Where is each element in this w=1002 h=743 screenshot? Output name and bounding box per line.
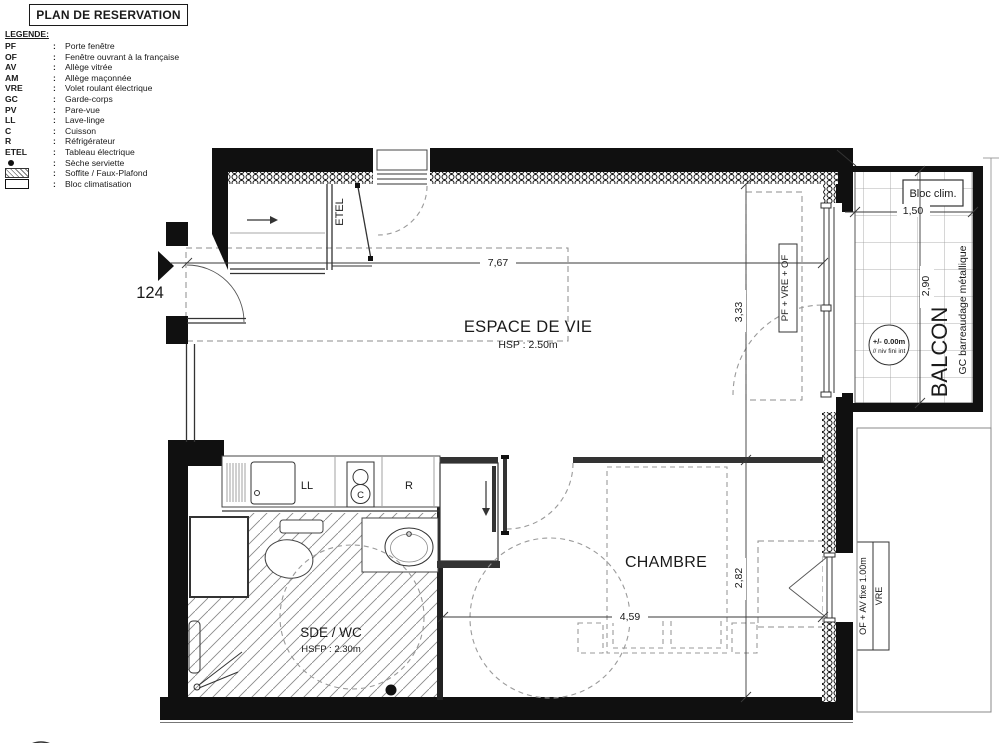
unit-number-marker: 124 (136, 251, 174, 302)
balcony-railing-label: GC barreaudage métallique (957, 245, 969, 374)
bedroom-window-label: OF + AV fixe 1.00m (858, 557, 868, 635)
unit-number: 124 (136, 284, 164, 302)
bedroom-shutter-label: VRE (874, 587, 884, 606)
technical-duct-niche (190, 517, 248, 597)
level-value: +/- 0.00m (873, 337, 906, 346)
floor-plan-drawing: 124 ETEL (0, 0, 1002, 743)
level-marker: +/- 0.00m // niv fini int (869, 325, 909, 365)
kitchen-counter: LL C R (222, 456, 440, 507)
cooktop-label: C (357, 490, 364, 501)
arrow-right-icon (247, 216, 278, 224)
balcony-door-tag: PF + VRE + OF (779, 244, 797, 332)
living-room-label: ESPACE DE VIE (464, 318, 592, 336)
living-window (373, 146, 430, 235)
bedroom-window (789, 553, 857, 622)
washer-label: LL (301, 480, 313, 492)
dim-bedroom-depth: 2,82 (733, 568, 745, 589)
level-note: // niv fini int (873, 348, 906, 355)
dim-balcony-depth: 2,90 (920, 276, 932, 297)
bedroom-label: CHAMBRE (625, 554, 707, 571)
dim-living-width: 7,67 (488, 257, 509, 269)
towel-dryer-dot (386, 685, 397, 696)
bedroom-door-swing (507, 463, 573, 529)
electrical-panel: ETEL (327, 183, 373, 270)
living-room-ceiling: HSP : 2.50m (498, 339, 558, 351)
bedroom-window-tag: OF + AV fixe 1.00m VRE (857, 542, 889, 650)
bathroom-label: SDE / WC (300, 625, 362, 640)
etel-label: ETEL (334, 198, 346, 226)
ac-unit-label: Bloc clim. (909, 188, 956, 200)
floor-plan-page: PLAN DE RESERVATION LEGENDE: PF:Porte fe… (0, 0, 1002, 743)
bathroom-ceiling: HSFP : 2.30m (301, 644, 361, 655)
fridge-label: R (405, 480, 413, 492)
dim-bedroom-width: 4,59 (620, 611, 641, 623)
entry-closet (230, 216, 325, 274)
dim-living-depth: 3,33 (733, 302, 745, 323)
bedroom-closet (437, 455, 509, 568)
balcony-door-label: PF + VRE + OF (780, 255, 791, 322)
balcony-room-label: BALCON (927, 307, 952, 397)
ac-unit-box: Bloc clim. (903, 180, 963, 206)
